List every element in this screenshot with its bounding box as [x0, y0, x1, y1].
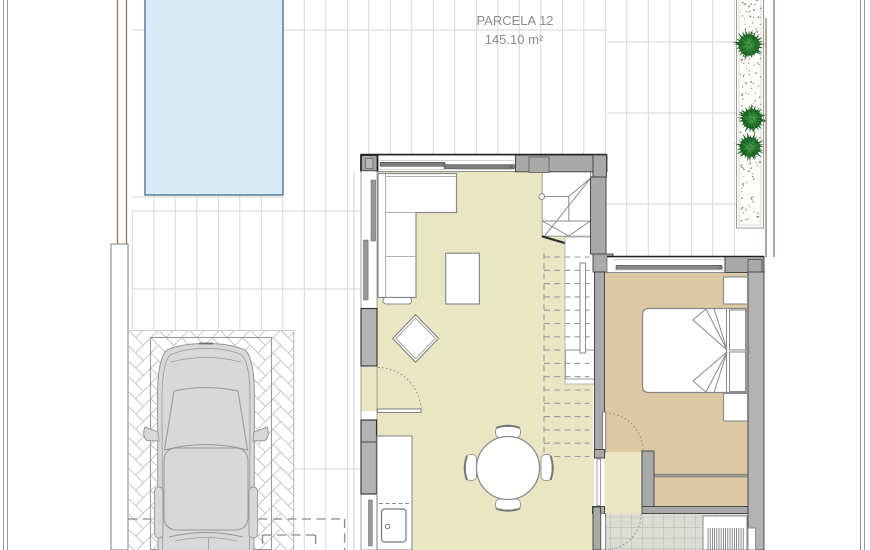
svg-text:145.10 m²: 145.10 m²	[485, 32, 544, 47]
svg-text:PARCELA 12: PARCELA 12	[476, 13, 553, 28]
